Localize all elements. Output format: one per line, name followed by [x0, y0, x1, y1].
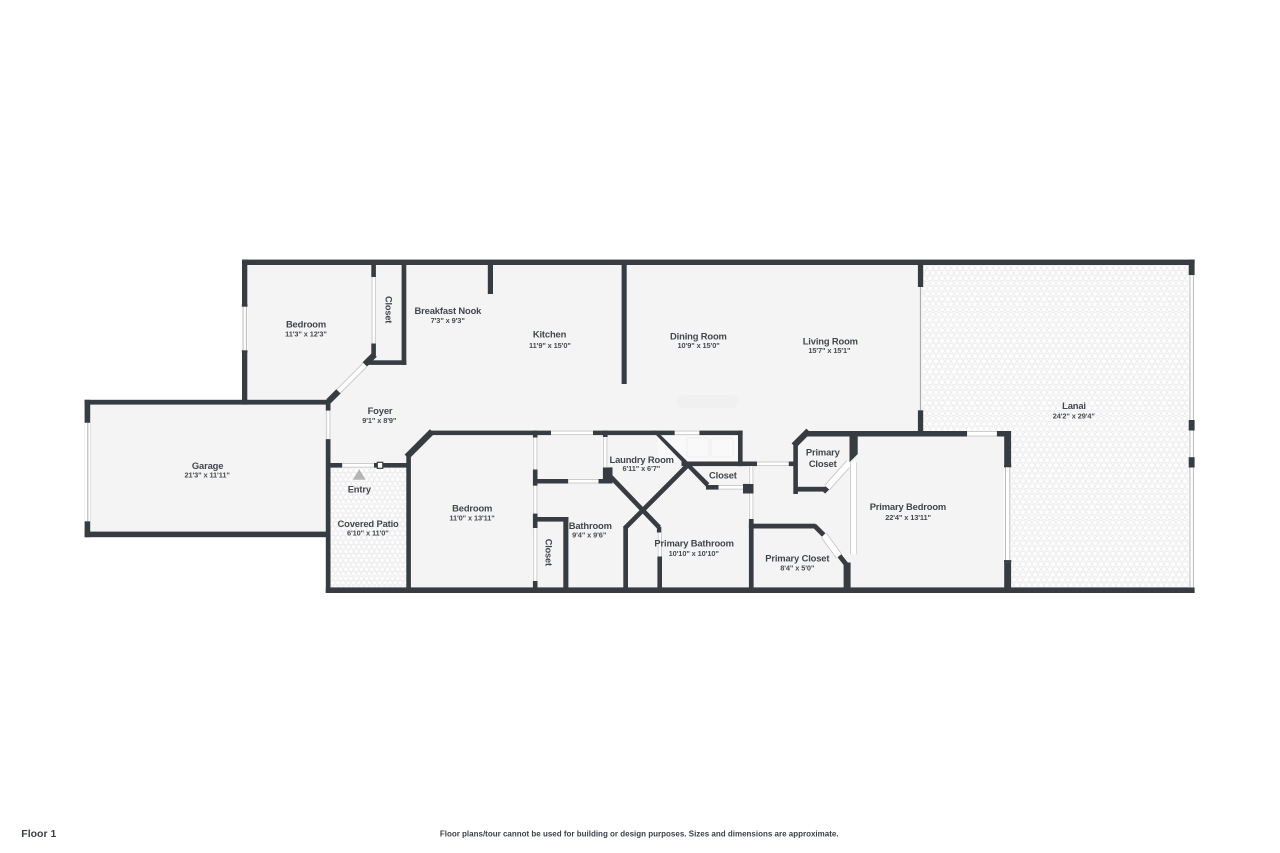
svg-text:Primary Bathroom: Primary Bathroom — [654, 538, 733, 549]
svg-text:9'1" x 8'9": 9'1" x 8'9" — [362, 416, 397, 425]
svg-text:22'4" x 13'11": 22'4" x 13'11" — [885, 513, 931, 522]
svg-text:11'9" x 15'0": 11'9" x 15'0" — [529, 341, 571, 350]
svg-text:6'11" x 6'7": 6'11" x 6'7" — [622, 464, 660, 473]
svg-text:Garage: Garage — [192, 460, 223, 471]
svg-text:10'10" x 10'10": 10'10" x 10'10" — [669, 549, 720, 558]
svg-text:Entry: Entry — [348, 484, 372, 495]
svg-text:7'3" x 9'3": 7'3" x 9'3" — [431, 316, 466, 325]
svg-text:24'2" x 29'4": 24'2" x 29'4" — [1053, 412, 1096, 421]
svg-text:Bathroom: Bathroom — [569, 520, 612, 531]
svg-text:6'10" x 11'0": 6'10" x 11'0" — [347, 528, 389, 537]
svg-text:Primary Closet: Primary Closet — [765, 553, 829, 564]
svg-text:Closet: Closet — [709, 469, 737, 480]
svg-text:Closet: Closet — [809, 458, 837, 469]
svg-text:9'4" x 9'6": 9'4" x 9'6" — [572, 531, 607, 540]
svg-text:Lanai: Lanai — [1062, 400, 1086, 411]
svg-text:11'3" x 12'3": 11'3" x 12'3" — [285, 330, 327, 339]
svg-text:Closet: Closet — [384, 296, 394, 323]
svg-text:Closet: Closet — [543, 539, 553, 566]
svg-text:Primary: Primary — [806, 446, 841, 457]
svg-text:8'4" x 5'0": 8'4" x 5'0" — [780, 564, 815, 573]
svg-text:Kitchen: Kitchen — [533, 329, 567, 340]
svg-text:Foyer: Foyer — [368, 405, 393, 416]
svg-text:11'0" x 13'11": 11'0" x 13'11" — [449, 514, 495, 523]
svg-text:Bedroom: Bedroom — [452, 502, 492, 513]
svg-text:15'7" x 15'1": 15'7" x 15'1" — [808, 346, 851, 355]
svg-text:21'3" x 11'11": 21'3" x 11'11" — [184, 471, 230, 480]
svg-text:Primary Bedroom: Primary Bedroom — [870, 501, 946, 512]
svg-text:10'9" x 15'0": 10'9" x 15'0" — [678, 341, 721, 350]
svg-text:Floor 1: Floor 1 — [21, 828, 56, 840]
svg-text:Breakfast Nook: Breakfast Nook — [415, 305, 483, 316]
svg-text:Dining Room: Dining Room — [670, 331, 727, 342]
svg-text:Floor plans/tour cannot be use: Floor plans/tour cannot be used for buil… — [440, 830, 839, 839]
svg-text:Living Room: Living Room — [803, 335, 858, 346]
svg-text:Bedroom: Bedroom — [286, 318, 326, 329]
